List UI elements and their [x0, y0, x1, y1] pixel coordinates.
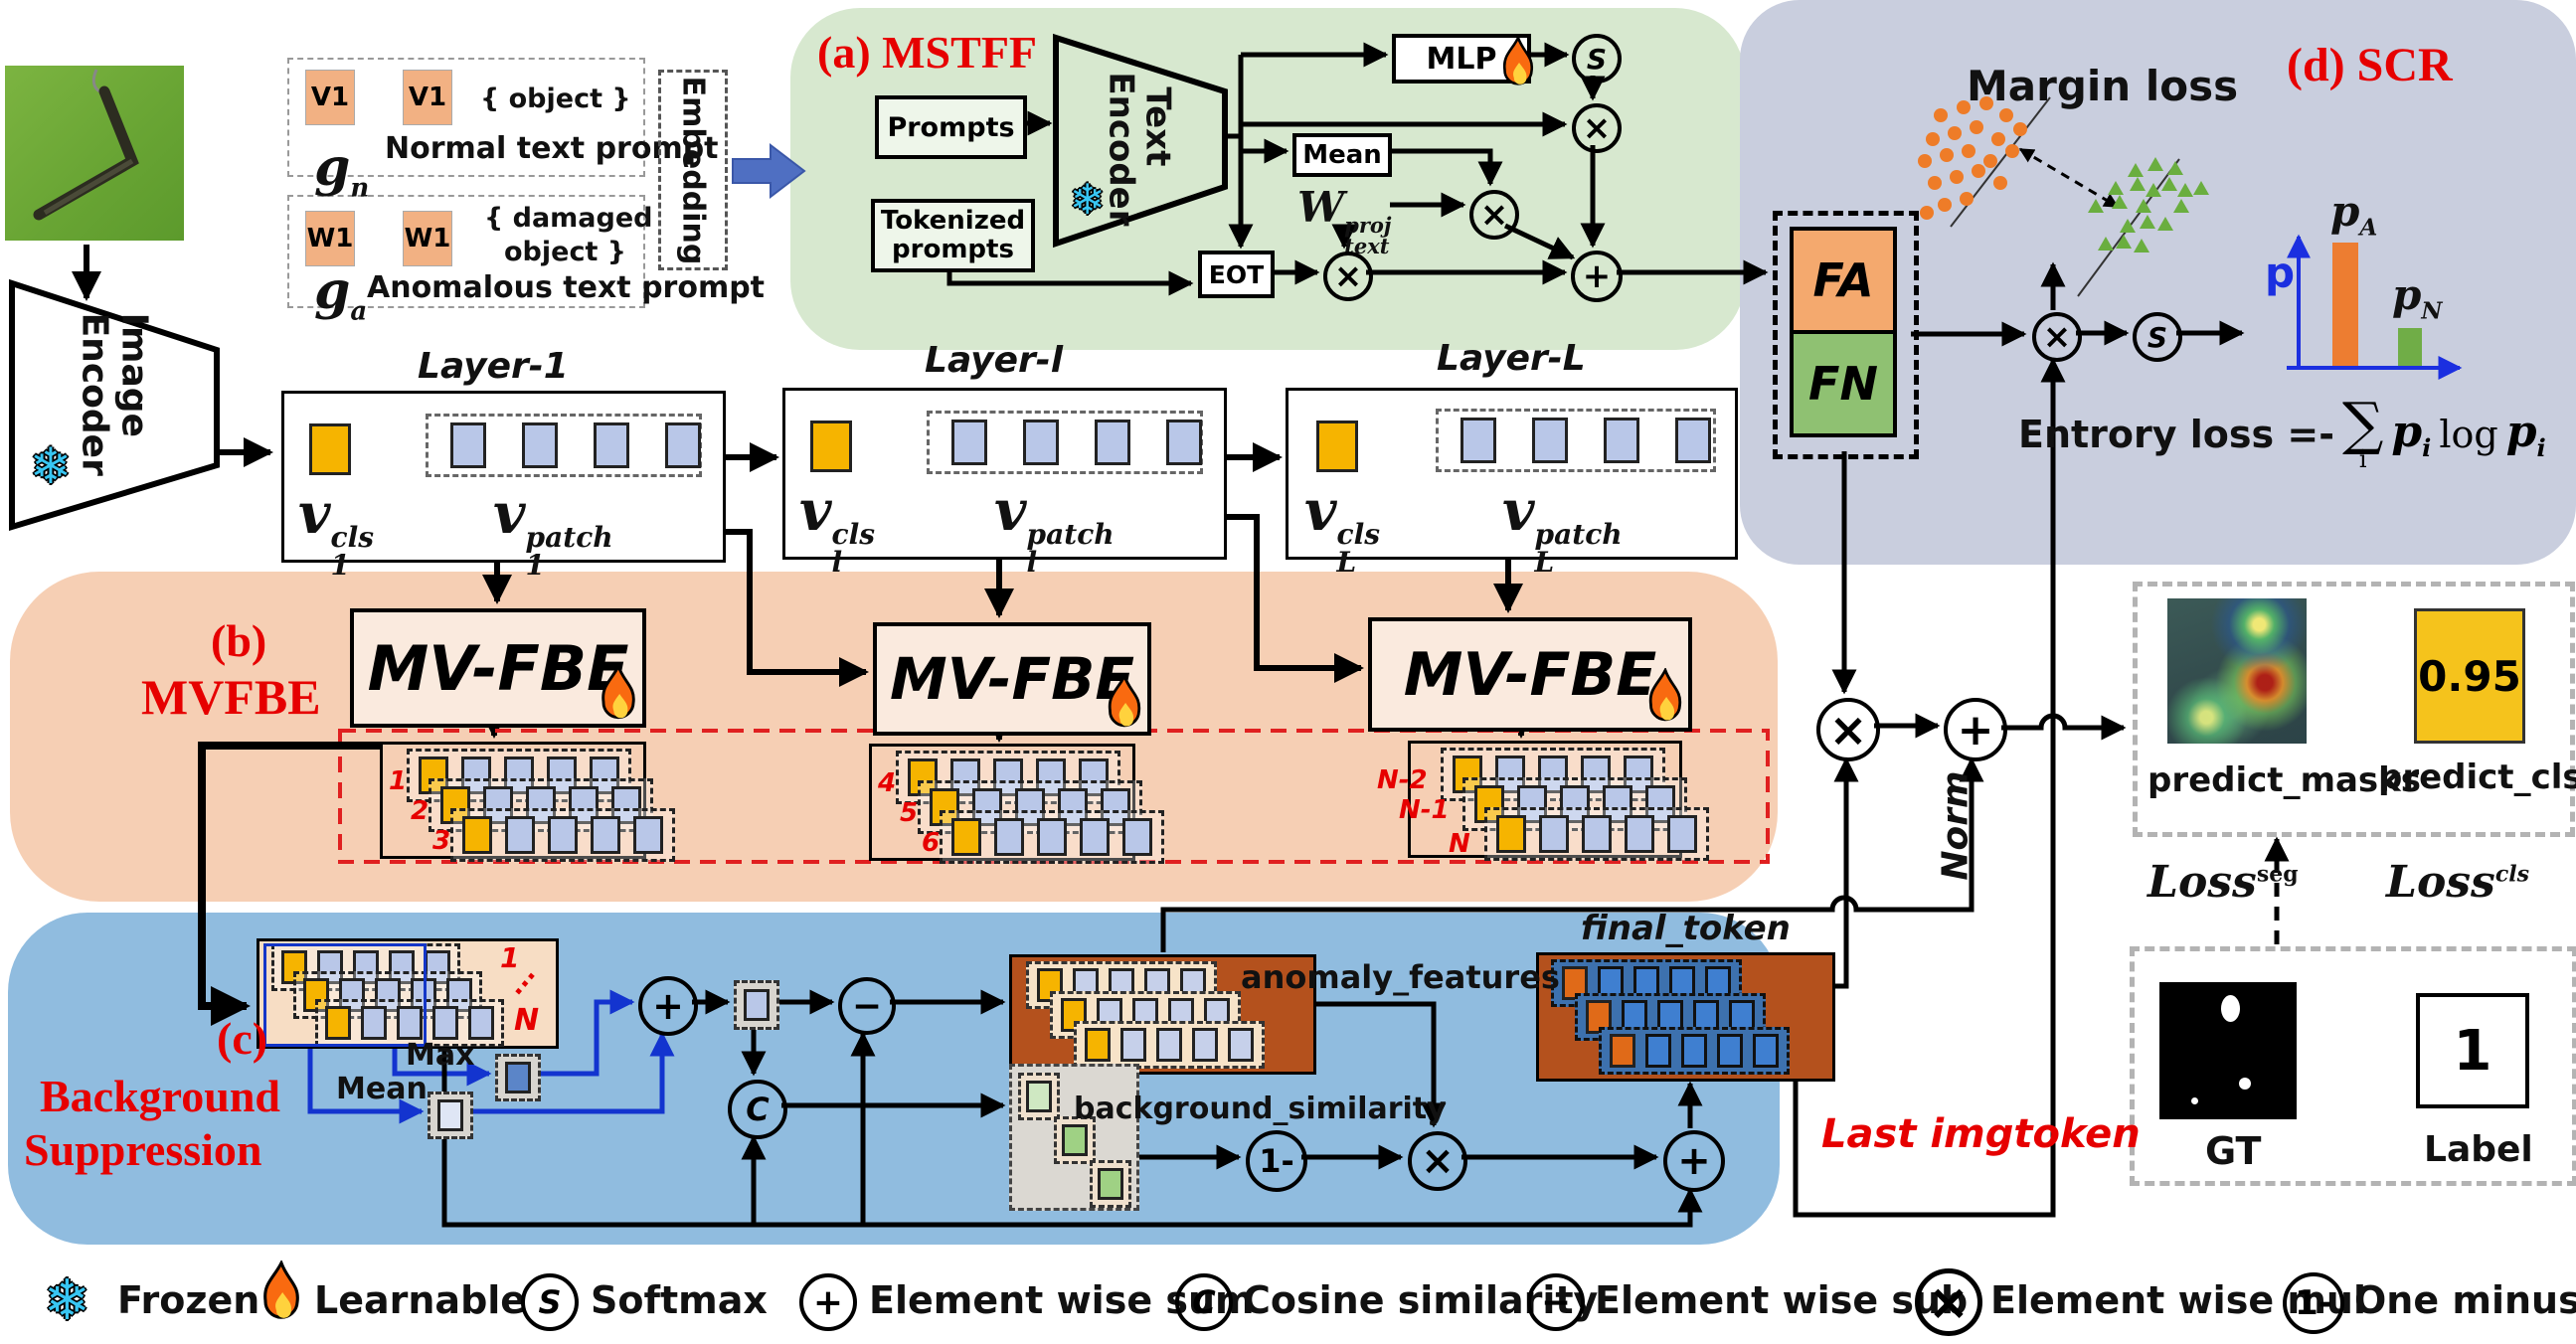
mul-op: × — [1572, 103, 1622, 153]
snowflake-icon: ❄ — [44, 1268, 90, 1333]
fa-box: FA — [1790, 227, 1897, 334]
anomalous-prompt-label: Anomalous text prompt — [367, 270, 765, 305]
foreground-selection-rect — [263, 943, 427, 1047]
region-b-title2: MVFBE — [141, 668, 321, 726]
region-b-title: (b) — [211, 614, 266, 667]
mul-icon: × — [1915, 1268, 1982, 1336]
sum-op: + — [638, 976, 698, 1036]
v1-token: V1 — [305, 70, 355, 125]
prob-bar-normal — [2398, 328, 2422, 366]
p-a-label: pA — [2330, 187, 2377, 241]
damaged-slot-label2: object } — [504, 237, 626, 267]
layer-l-box: vclsl vpatchl — [782, 388, 1227, 560]
token-row — [450, 808, 675, 862]
region-c-title: (c) — [217, 1012, 267, 1065]
similarity-token — [1090, 1160, 1131, 1208]
fn-box: FN — [1790, 330, 1897, 437]
layer-L-title: Layer-L — [1437, 338, 1586, 379]
gt-mask — [2159, 982, 2297, 1119]
tokenized-prompts-box: Tokenizedprompts — [871, 199, 1035, 272]
embedding-box: Embedding — [658, 70, 728, 270]
token-group-1: 1 2 3 — [380, 742, 646, 859]
background-similarity-label: background_similarity — [1074, 1092, 1447, 1126]
token-index: 1 — [389, 766, 407, 796]
entropy-loss-formula: Entrory loss =- ∑i pi log pi — [2018, 398, 2546, 471]
token-row — [1074, 1021, 1265, 1069]
token-index-N: N — [514, 1003, 539, 1038]
token-index: 6 — [922, 828, 940, 858]
g-a-symbol: ga — [314, 260, 367, 326]
text-encoder-label: TextEncoder — [1102, 72, 1176, 181]
region-c-title3: Suppression — [24, 1123, 262, 1176]
cosine-op: C — [728, 1080, 787, 1139]
mean-box: Mean — [1292, 133, 1392, 177]
prob-bar-anomaly — [2332, 243, 2358, 366]
image-encoder-label: ImageEncoder — [75, 313, 153, 422]
layer-l-title: Layer-l — [925, 340, 1063, 381]
token-index: 2 — [411, 796, 429, 826]
prompts-box: Prompts — [875, 95, 1027, 159]
eot-box: EOT — [1198, 251, 1275, 298]
token-group-2: 4 5 6 — [869, 744, 1135, 861]
sum-op: + — [1571, 251, 1623, 302]
v1-token: V1 — [403, 70, 452, 125]
predict-score-box: 0.95 — [2414, 608, 2525, 744]
region-c-title2: Background — [40, 1070, 280, 1122]
softmax-icon: S — [521, 1273, 579, 1331]
frozen-snowflake-icon: ❄ — [1070, 175, 1105, 224]
cosine-icon: C — [1175, 1273, 1233, 1331]
embedding-label: Embedding — [676, 76, 711, 264]
legend-softmax: Softmax — [591, 1278, 768, 1322]
bs-input-tokens-box: 1 ... N — [257, 938, 559, 1049]
max-token — [495, 1054, 541, 1101]
sum-op: + — [1663, 1130, 1725, 1192]
token-group-3: N-2 N-1 N — [1408, 741, 1682, 858]
similarity-token — [1018, 1073, 1060, 1120]
anomaly-features-label: anomaly_features — [1241, 958, 1560, 996]
sub-op: − — [838, 977, 896, 1035]
vL-cls-symbol: vclsL — [1304, 478, 1380, 577]
fa-fn-stack: FA FN — [1773, 211, 1919, 459]
layer-1-box: vcls1 vpatch1 — [281, 391, 726, 563]
learnable-flame-icon — [595, 664, 642, 728]
sub-icon: − — [1527, 1273, 1585, 1331]
token-row — [1484, 807, 1709, 861]
token-index: 4 — [878, 768, 896, 798]
gt-label: GT — [2205, 1129, 2261, 1173]
vl-cls-symbol: vclsl — [799, 478, 875, 577]
legend-frozen: Frozen — [117, 1278, 259, 1322]
p-n-label: pN — [2392, 270, 2442, 324]
region-d-title: (d) SCR — [2287, 38, 2453, 92]
mean-token — [428, 1092, 473, 1139]
frozen-snowflake-icon: ❄ — [30, 437, 72, 495]
norm-label: Norm — [1936, 770, 1976, 880]
sum-op: + — [1944, 698, 2007, 761]
loss-seg-label: Lossseg — [2147, 857, 2299, 908]
last-imgtoken-label: Last imgtoken — [1821, 1111, 2141, 1157]
flame-icon — [257, 1260, 306, 1328]
softmax-op: S — [2133, 312, 2182, 362]
token-row — [940, 810, 1164, 864]
background-similarity-box — [1009, 1064, 1139, 1211]
region-a-title: (a) MSTFF — [817, 26, 1037, 79]
v1-cls-symbol: vcls1 — [298, 481, 374, 580]
legend-one-minus: One minus × — [2354, 1278, 2576, 1322]
learnable-flame-icon — [1642, 668, 1688, 730]
sum-icon: + — [799, 1273, 857, 1331]
cls-token — [309, 423, 351, 475]
mean-label: Mean — [336, 1072, 428, 1106]
final-token-label: final_token — [1581, 909, 1791, 948]
token-index: 3 — [432, 826, 450, 856]
patch-token-row — [426, 414, 702, 477]
vL-patch-symbol: vpatchL — [1502, 478, 1623, 577]
fused-token — [734, 980, 779, 1030]
predict-heatmap — [2167, 598, 2307, 744]
token-index: N — [1449, 829, 1470, 859]
cls-token — [1316, 420, 1358, 472]
w-text-proj-symbol: Wprojtext — [1297, 183, 1392, 256]
vl-patch-symbol: vpatchl — [994, 478, 1115, 577]
layer-1-title: Layer-1 — [418, 346, 569, 387]
patch-token-row — [927, 411, 1203, 474]
mul-op: × — [1469, 190, 1519, 240]
legend-learnable: Learnable — [314, 1278, 526, 1322]
patch-token-row — [1436, 409, 1716, 472]
token-index: N-1 — [1399, 795, 1450, 825]
final-token-box — [1536, 952, 1835, 1082]
token-row — [1599, 1027, 1790, 1075]
softmax-op: S — [1572, 34, 1622, 84]
mul-op: × — [1816, 698, 1880, 761]
cls-token — [810, 420, 852, 472]
g-n-symbol: gn — [314, 137, 369, 203]
predict-cls-label: predict_cls — [2378, 757, 2576, 797]
token-index: N-2 — [1377, 765, 1428, 795]
learnable-flame-icon — [1102, 674, 1147, 736]
v1-patch-symbol: vpatch1 — [493, 481, 613, 580]
w1-token: W1 — [403, 211, 452, 266]
one-minus-op: 1- — [1246, 1130, 1307, 1192]
token-index: 5 — [900, 798, 918, 828]
w1-token: W1 — [305, 211, 355, 266]
mul-op: × — [1323, 252, 1373, 301]
max-label: Max — [406, 1038, 474, 1073]
bent-rod-graphic — [5, 66, 184, 241]
layer-L-box: vclsL vpatchL — [1286, 388, 1738, 560]
loss-cls-label: Losscls — [2386, 857, 2529, 908]
legend-sub: Element wise sub — [1595, 1278, 1968, 1322]
learnable-flame-icon — [1496, 36, 1540, 93]
prob-axis-label: p — [2265, 249, 2295, 297]
margin-loss-label: Margin loss — [1967, 62, 2238, 110]
mul-op: × — [1408, 1131, 1467, 1191]
label-caption: Label — [2424, 1129, 2533, 1170]
object-slot-label: { object } — [480, 84, 631, 114]
damaged-slot-label: { damaged — [484, 203, 653, 234]
one-minus-icon: 1- — [2283, 1272, 2344, 1334]
mul-op: × — [2032, 312, 2082, 362]
input-image — [5, 66, 184, 241]
figure-canvas: V1 V1 { object } Normal text prompt gn W… — [0, 0, 2576, 1344]
class-label-box: 1 — [2416, 993, 2529, 1108]
